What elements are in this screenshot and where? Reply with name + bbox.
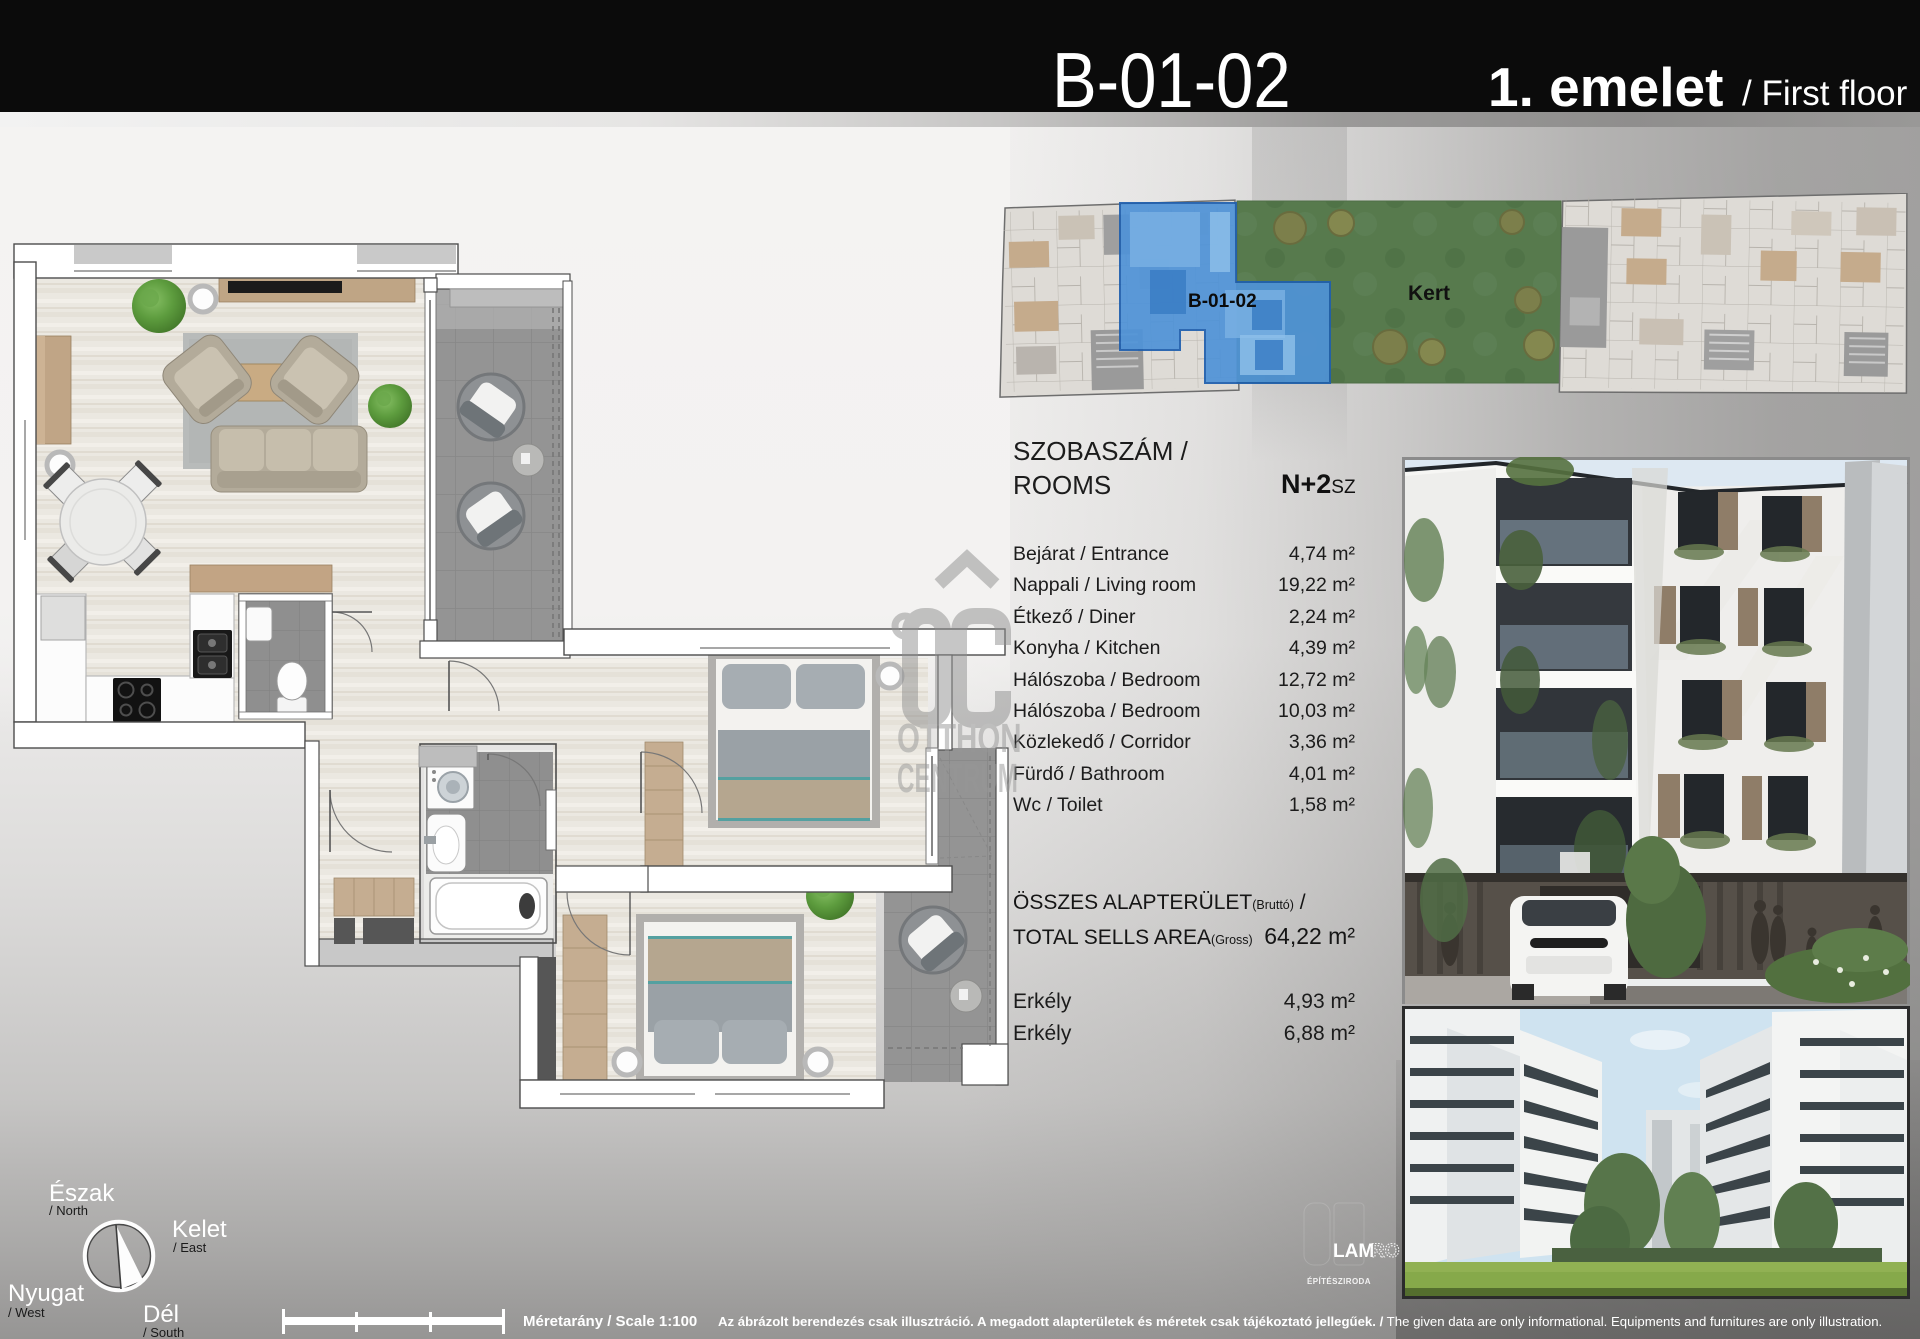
svg-text:ÉPÍTÉSZIRODA: ÉPÍTÉSZIRODA (1307, 1277, 1371, 1286)
svg-text:CENTRUM: CENTRUM (897, 757, 1018, 802)
svg-text:B-01-02: B-01-02 (1188, 291, 1257, 312)
svg-text:LAM: LAM (1333, 1241, 1374, 1262)
svg-text:Kert: Kert (1408, 282, 1450, 305)
svg-text:RO: RO (1371, 1241, 1400, 1262)
svg-text:OTTHON: OTTHON (897, 715, 1022, 761)
